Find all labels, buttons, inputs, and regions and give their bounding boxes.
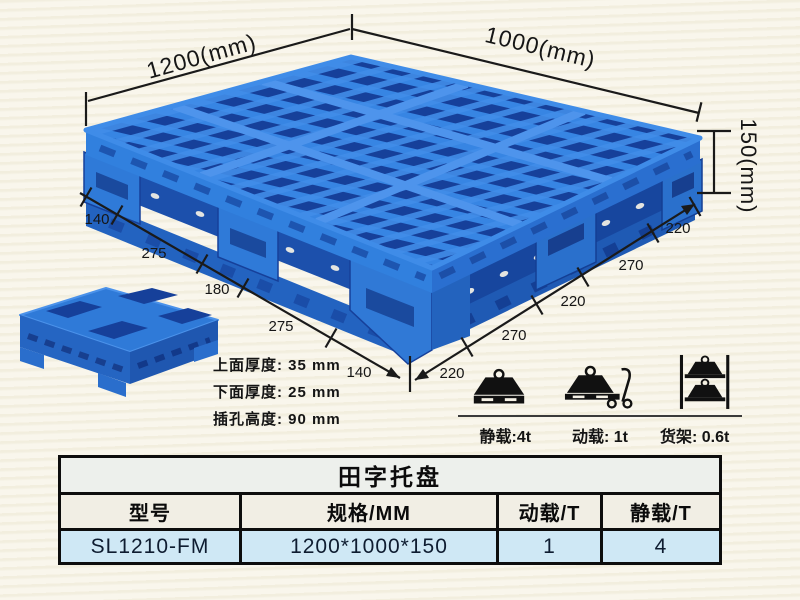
dynamic-load-caption: 动载: 1t [553,423,648,447]
spec-table-title: 田字托盘 [61,458,719,495]
model-value: SL1210-FM [61,531,242,562]
column-header-model: 型号 [61,495,242,528]
spec-table-header-row: 型号 规格/MM 动载/T 静载/T [61,495,719,531]
left-segment-label: 140 [84,211,109,228]
static-load-icon [468,367,530,414]
width-dimension-label: 1200(mm) [144,28,260,83]
spec-table: 田字托盘 型号 规格/MM 动载/T 静载/T SL1210-FM 1200*1… [58,455,722,565]
column-header-static-load: 静载/T [603,495,719,528]
spec-value: 1200*1000*150 [242,531,499,562]
left-segment-label: 140 [346,364,371,381]
spec-table-data-row: SL1210-FM 1200*1000*150 1 4 [61,531,719,562]
right-segment-label: 270 [501,327,526,344]
static-load-value: 4 [603,531,719,562]
left-segment-label: 180 [204,281,229,298]
load-ratings: 静载:4t 动载: 1t 货架: 0.6t [458,368,742,447]
dynamic-load-value: 1 [499,531,603,562]
rack-load-caption: 货架: 0.6t [647,423,742,447]
bottom-thickness-text: 下面厚度: 25 mm [213,379,341,406]
left-segment-label: 275 [268,318,293,335]
column-header-dynamic-load: 动载/T [499,495,603,528]
small-pallet-illustration [20,288,218,397]
right-segment-label: 220 [665,220,690,237]
static-load-caption: 静载:4t [458,423,553,447]
thickness-specs: 上面厚度: 35 mm 下面厚度: 25 mm 插孔高度: 90 mm [213,352,341,433]
product-spec-sheet: 1200(mm) 1000(mm) 150(mm) 140 2 [0,0,800,600]
height-dimension-label: 150(mm) [736,118,761,213]
fork-height-text: 插孔高度: 90 mm [213,406,341,433]
top-thickness-text: 上面厚度: 35 mm [213,352,341,379]
right-segment-label: 220 [560,293,585,310]
column-header-spec: 规格/MM [242,495,499,528]
left-segment-label: 275 [141,245,166,262]
dynamic-load-icon [563,363,645,414]
load-icons-baseline [458,415,742,417]
right-segment-label: 270 [618,257,643,274]
rack-load-icon [678,353,732,414]
